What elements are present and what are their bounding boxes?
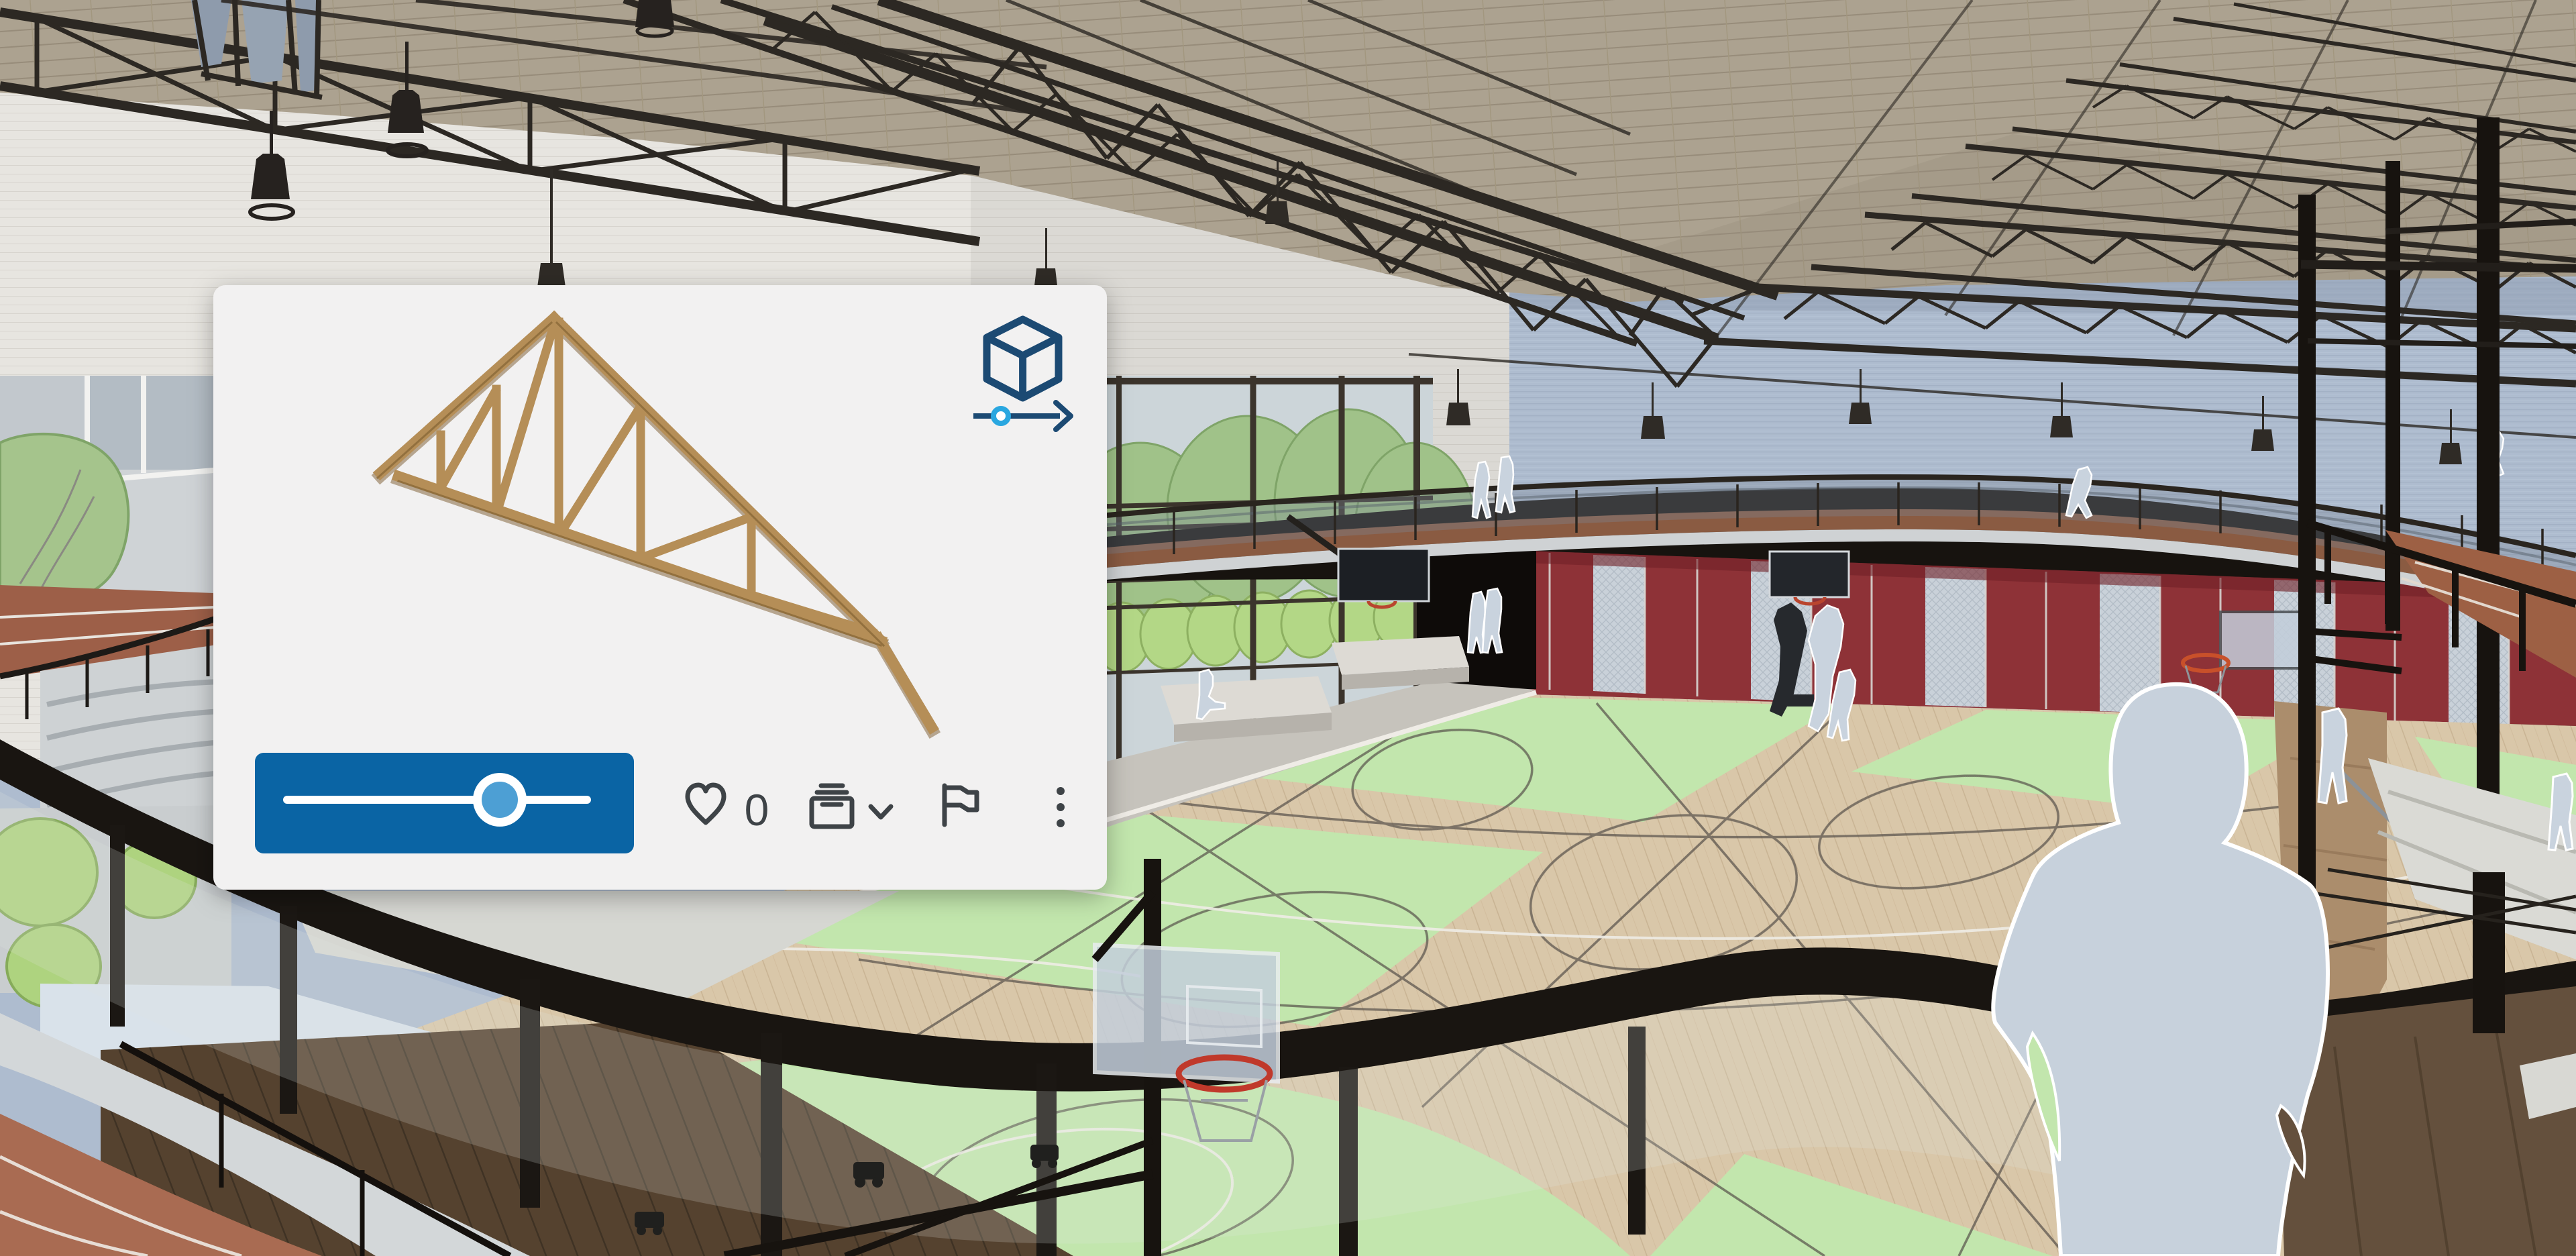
svg-text:0: 0: [745, 785, 769, 835]
